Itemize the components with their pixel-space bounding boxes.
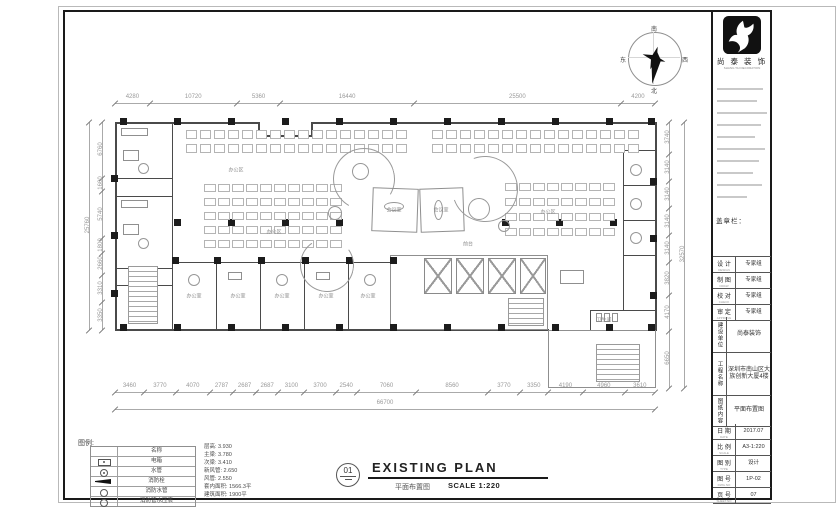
fine-print-line (717, 136, 755, 138)
desk (302, 184, 314, 192)
legend-row: 名称 (91, 447, 195, 457)
wall (216, 262, 217, 330)
compass-label-east: 东 (620, 55, 626, 64)
desk (432, 144, 443, 153)
desk (232, 198, 244, 206)
furniture (121, 128, 148, 136)
compass-label-west: 西 (682, 55, 688, 64)
dimension-tick (652, 389, 658, 395)
column (650, 292, 657, 299)
furniture (138, 163, 149, 174)
fine-print-line (717, 148, 765, 150)
vrow-value: 平面布置图 (727, 396, 771, 426)
fine-print-line (717, 184, 762, 186)
compass-rose: 南 东 西 北 (622, 26, 686, 90)
desk (330, 226, 342, 234)
desk (274, 240, 286, 248)
column (282, 118, 289, 125)
desk (218, 226, 230, 234)
legend-note: 层高: 3.930 (204, 444, 314, 451)
column (228, 324, 235, 331)
legend-row: 消防管水压表 (91, 497, 195, 506)
desk (354, 130, 365, 139)
furniture (630, 232, 642, 244)
desk (558, 144, 569, 153)
company-caption: SHANG TAI DECORATION (713, 66, 771, 70)
desk (284, 144, 295, 153)
title-block-row: 图 号DWG.NO1P-02 (713, 472, 771, 488)
legend-symbol-cell (91, 497, 118, 506)
desk (586, 130, 597, 139)
legend-symbol-cell (91, 477, 118, 486)
desk (302, 198, 314, 206)
desk (326, 130, 337, 139)
column (648, 324, 655, 331)
dimension-label: 10720 (173, 94, 213, 100)
column (390, 324, 397, 331)
vrow-label: 建设单位 (713, 317, 727, 352)
desk (246, 226, 258, 234)
column (650, 235, 657, 242)
drawing-sheet: { "sheet": { "drawing_title": {"number":… (0, 0, 840, 515)
desk (256, 144, 267, 153)
dimension-label: 8560 (432, 383, 472, 389)
column (498, 118, 505, 125)
dimension-label: 4280 (112, 94, 152, 100)
dimension-label: 25500 (497, 94, 537, 100)
row-label-cell: 比 例SCALE (713, 440, 736, 455)
desk (312, 144, 323, 153)
desk (242, 144, 253, 153)
company-logo (723, 16, 761, 54)
vrow-label: 图纸内容 (713, 396, 727, 426)
furniture (612, 313, 618, 322)
furniture (123, 224, 139, 235)
desk (246, 198, 258, 206)
desk (628, 144, 639, 153)
desk (288, 226, 300, 234)
furniture (138, 238, 149, 249)
staircase (508, 298, 544, 326)
column (174, 118, 181, 125)
column (174, 219, 181, 226)
row-label-cell: 制 图DRAW (713, 273, 736, 288)
drawing-scale: SCALE 1:220 (448, 481, 500, 490)
column (390, 257, 397, 264)
row-label-cell: 图 别TYPE (713, 456, 736, 471)
title-block-brows: 日 期DATE2017.07比 例SCALEA3-1:220图 别TYPE设计图… (713, 424, 771, 504)
bubble-divider (340, 476, 355, 477)
desk (218, 184, 230, 192)
vrow-label: 工程名称 (713, 353, 727, 395)
desk (474, 130, 485, 139)
desk (547, 198, 559, 206)
column (444, 118, 451, 125)
legend-row: 消防水管 (91, 487, 195, 497)
hydrant-icon (95, 479, 111, 484)
drawing-number: 01 (337, 466, 359, 475)
furniture (121, 200, 148, 208)
legend-note: 次梁: 3.410 (204, 460, 314, 467)
title-block-row: 图 别TYPE设计 (713, 456, 771, 472)
column (120, 118, 127, 125)
desk (572, 130, 583, 139)
drawing-title: EXISTING PLAN (372, 460, 498, 475)
desk (186, 144, 197, 153)
row-sublabel: TYPE (713, 467, 735, 471)
desk (214, 130, 225, 139)
desk (519, 213, 531, 221)
row-value: 专家组 (736, 273, 771, 288)
desk (603, 228, 615, 236)
legend-name: 水管 (118, 467, 195, 476)
compass-label-north: 北 (651, 86, 657, 95)
furniture (123, 150, 139, 161)
desk (547, 228, 559, 236)
column (336, 324, 343, 331)
desk (246, 240, 258, 248)
legend-name: 名称 (118, 447, 195, 456)
dimension-label: 66700 (365, 400, 405, 406)
wall (623, 150, 624, 310)
title-block-row: 设 计DESIGN专家组 (713, 257, 771, 273)
elevator-shaft (488, 258, 516, 294)
column (174, 324, 181, 331)
row-label-cell: 页 号SHEET.NO (713, 488, 736, 503)
desk (488, 144, 499, 153)
desk (246, 184, 258, 192)
title-block-vrow: 建设单位尚泰装饰 (713, 317, 771, 353)
title-block-row: 比 例SCALEA3-1:220 (713, 440, 771, 456)
desk (316, 226, 328, 234)
legend-note: 套内面积: 1566.3平 (204, 484, 314, 491)
wall (172, 122, 173, 330)
legend-symbol-cell (91, 457, 118, 466)
desk (544, 144, 555, 153)
dimension-label: 5360 (239, 94, 279, 100)
desk (260, 198, 272, 206)
wall (115, 122, 117, 331)
column (111, 175, 118, 182)
staircase (128, 266, 158, 324)
row-label: 设 计 (713, 259, 735, 268)
row-sublabel: DWG.NO (713, 483, 735, 487)
row-sublabel: CHECK (713, 300, 735, 304)
desk (274, 212, 286, 220)
desk (575, 183, 587, 191)
desk (242, 130, 253, 139)
column (172, 257, 179, 264)
row-value: 07 (736, 488, 771, 503)
desk (214, 144, 225, 153)
dim-bottom-total-line (115, 409, 655, 410)
desk (589, 183, 601, 191)
dimension-label: 4170 (665, 292, 671, 332)
desk (575, 213, 587, 221)
dimension-label: 4960 (584, 383, 624, 389)
dimension-tick (652, 406, 658, 412)
desk (530, 144, 541, 153)
wall (655, 122, 657, 331)
wall (115, 178, 172, 179)
row-label-cell: 日 期DATE (713, 424, 736, 439)
room-label: 卫生间 (596, 317, 611, 324)
row-label: 页 号 (713, 490, 735, 499)
desk (488, 130, 499, 139)
desk (274, 184, 286, 192)
column (336, 219, 343, 226)
desk (228, 144, 239, 153)
elevator-shaft (424, 258, 452, 294)
dimension-tick (86, 327, 92, 333)
desk (561, 183, 573, 191)
row-sublabel: DESIGN (713, 268, 735, 272)
dim-bottom-line (115, 392, 655, 393)
room-label: 办公区 (540, 209, 555, 216)
legend-name: 消防管水压表 (118, 497, 195, 506)
room-label: 前台 (463, 241, 473, 248)
pipe-icon (100, 469, 108, 477)
dimension-tick (652, 100, 658, 106)
desk (502, 144, 513, 153)
row-label-cell: 图 号DWG.NO (713, 472, 736, 487)
furniture (276, 274, 288, 286)
circle-icon (100, 499, 108, 507)
desk (533, 228, 545, 236)
dimension-label: 2540 (326, 383, 366, 389)
legend-symbol-cell (91, 447, 118, 456)
row-label: 图 号 (713, 474, 735, 483)
furniture (468, 198, 490, 220)
desk (530, 130, 541, 139)
desk (204, 226, 216, 234)
desk (232, 212, 244, 220)
desk (274, 198, 286, 206)
stamp-label: 盖章栏： (716, 215, 746, 225)
row-sublabel: DATE (713, 435, 735, 439)
title-block-row: 制 图DRAW专家组 (713, 273, 771, 289)
column (650, 178, 657, 185)
room-label: 办公室 (318, 293, 333, 300)
drawing-title-underline (368, 477, 548, 479)
title-block-vrows: 建设单位尚泰装饰工程名称深圳市南山区大族创新大厦4楼图纸内容平面布置图 (713, 317, 771, 427)
desk (204, 184, 216, 192)
column (390, 118, 397, 125)
desk (516, 130, 527, 139)
circle-icon (100, 489, 108, 497)
desk (575, 198, 587, 206)
furniture (560, 270, 584, 284)
desk (516, 144, 527, 153)
desk (519, 198, 531, 206)
legend-note: 风管: 2.550 (204, 476, 314, 483)
desk (561, 228, 573, 236)
dimension-label: 7060 (367, 383, 407, 389)
row-label: 审 定 (713, 307, 735, 316)
desk (446, 130, 457, 139)
row-value: 专家组 (736, 289, 771, 304)
wall (115, 196, 172, 197)
bubble-dash (345, 479, 352, 480)
wall (623, 255, 655, 256)
desk (572, 144, 583, 153)
desk (368, 130, 379, 139)
elevator-shaft (520, 258, 546, 294)
title-block: 尚 泰 装 饰 SHANG TAI DECORATION 盖章栏： 设 计DES… (713, 10, 771, 499)
desk (589, 198, 601, 206)
desk (260, 212, 272, 220)
column (111, 290, 118, 297)
column (120, 324, 127, 331)
desk (575, 228, 587, 236)
ebox-icon (98, 459, 111, 466)
dimension-label: 3610 (620, 383, 660, 389)
desk (533, 198, 545, 206)
desk (586, 144, 597, 153)
legend-name: 消防栓 (118, 477, 195, 486)
compass-label-south: 南 (651, 24, 657, 33)
desk (270, 130, 281, 139)
legend-name: 电箱 (118, 457, 195, 466)
furniture (352, 163, 369, 180)
legend-row: 消防栓 (91, 477, 195, 487)
legend-name: 消防水管 (118, 487, 195, 496)
fine-print-line (717, 100, 757, 102)
row-label: 制 图 (713, 275, 735, 284)
wall (623, 185, 655, 186)
room-label: 办公室 (186, 293, 201, 300)
desk (288, 240, 300, 248)
legend-table: 名称电箱水管消防栓消防水管消防管水压表 (90, 446, 196, 507)
desk (246, 212, 258, 220)
desk (600, 130, 611, 139)
furniture (188, 274, 200, 286)
desk (533, 183, 545, 191)
row-value: A3-1:220 (736, 440, 771, 455)
desk (256, 130, 267, 139)
desk (232, 184, 244, 192)
desk (218, 240, 230, 248)
dimension-label: 16440 (327, 94, 367, 100)
drawing-title-cn: 平面布置图 (395, 482, 430, 492)
furniture (630, 198, 642, 210)
desk (270, 144, 281, 153)
desk (260, 240, 272, 248)
desk (544, 130, 555, 139)
desk (204, 198, 216, 206)
wall (590, 310, 591, 330)
column (552, 118, 559, 125)
desk (298, 144, 309, 153)
fine-print-line (717, 88, 763, 90)
title-block-rows: 设 计DESIGN专家组制 图DRAW专家组校 对CHECK专家组审 定APPR… (713, 256, 771, 321)
staircase (596, 344, 640, 382)
desk (561, 198, 573, 206)
desk (260, 184, 272, 192)
desk (446, 144, 457, 153)
desk (232, 226, 244, 234)
wall (172, 262, 391, 263)
furniture (316, 272, 330, 280)
room-label: 办公区 (228, 167, 243, 174)
column (258, 257, 265, 264)
desk (474, 144, 485, 153)
fine-print-line (717, 112, 767, 114)
row-label: 校 对 (713, 291, 735, 300)
desk (316, 184, 328, 192)
desk (218, 198, 230, 206)
desk (340, 130, 351, 139)
desk (218, 212, 230, 220)
dimension-tick (681, 385, 687, 391)
column (228, 118, 235, 125)
desk (519, 183, 531, 191)
legend-note: 主梁: 3.780 (204, 452, 314, 459)
dimension-tick (666, 385, 672, 391)
title-block-row: 校 对CHECK专家组 (713, 289, 771, 305)
desk (396, 144, 407, 153)
column (606, 118, 613, 125)
column (111, 232, 118, 239)
room-label: 办公室 (360, 293, 375, 300)
column (282, 219, 289, 226)
row-label-cell: 设 计DESIGN (713, 257, 736, 272)
row-sublabel: SCALE (713, 451, 735, 455)
desk (614, 130, 625, 139)
desk (603, 183, 615, 191)
row-label-cell: 校 对CHECK (713, 289, 736, 304)
desk (382, 144, 393, 153)
desk (547, 183, 559, 191)
furniture (364, 274, 376, 286)
desk (561, 213, 573, 221)
furniture (328, 206, 342, 220)
desk (396, 130, 407, 139)
desk (316, 198, 328, 206)
desk (382, 130, 393, 139)
room-label: 会议室 (433, 207, 448, 214)
column (606, 324, 613, 331)
legend-note: 建筑面积: 1900平 (204, 492, 314, 499)
desk (502, 130, 513, 139)
title-block-row: 页 号SHEET.NO07 (713, 488, 771, 504)
fine-print-line (717, 124, 761, 126)
column (228, 219, 235, 226)
title-block-vrow: 图纸内容平面布置图 (713, 396, 771, 427)
fine-print-line (717, 172, 753, 174)
desk (204, 212, 216, 220)
desk (603, 198, 615, 206)
wall (115, 122, 259, 124)
desk (589, 213, 601, 221)
desk (589, 228, 601, 236)
dim-top-line (115, 103, 655, 104)
legend-row: 电箱 (91, 457, 195, 467)
legend-notes: 层高: 3.930主梁: 3.780次梁: 3.410新风管: 2.650风管:… (204, 444, 314, 500)
elevator-shaft (456, 258, 484, 294)
furniture (228, 272, 242, 280)
column (444, 324, 451, 331)
desk (288, 184, 300, 192)
fine-print-line (717, 196, 747, 198)
desk (186, 130, 197, 139)
furniture (498, 220, 510, 232)
desk (312, 130, 323, 139)
desk (232, 240, 244, 248)
wall (260, 262, 261, 330)
desk (316, 212, 328, 220)
desk (288, 212, 300, 220)
